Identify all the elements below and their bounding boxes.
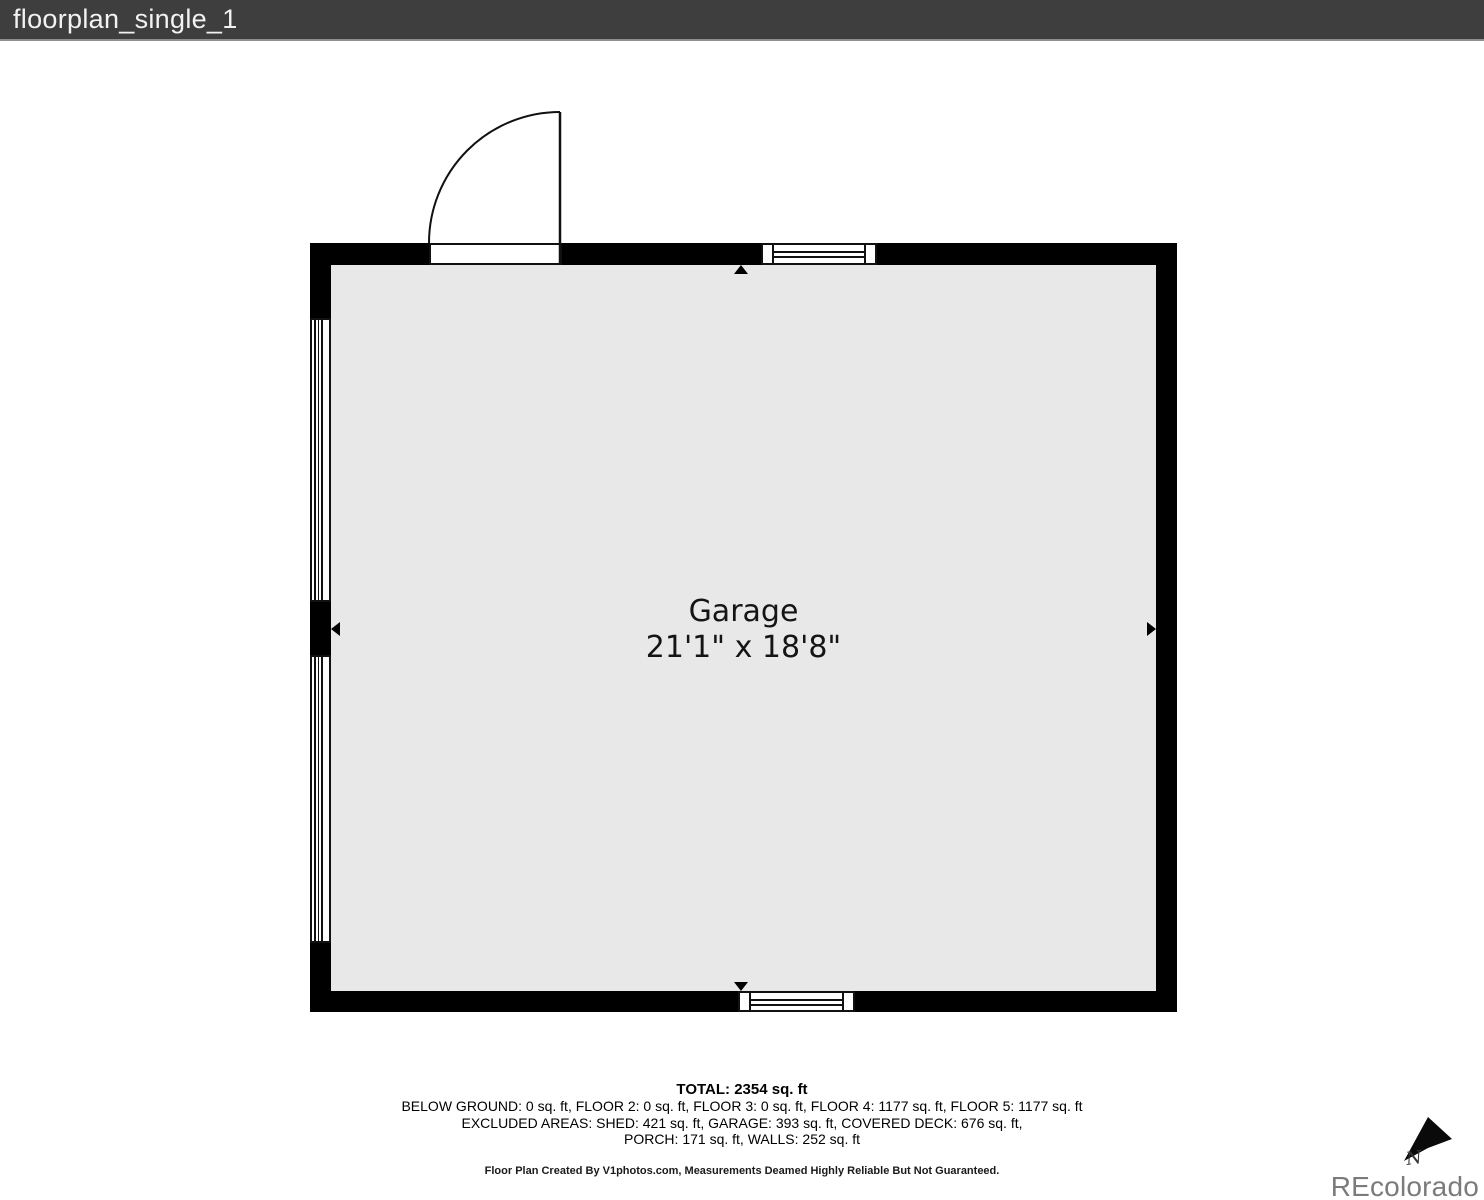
- window-pane-line: [321, 320, 323, 600]
- window-top-wall: [761, 243, 877, 265]
- room-name: Garage: [331, 594, 1156, 630]
- room-dimensions: 21'1" x 18'8": [331, 630, 1156, 666]
- window-pane-line: [773, 251, 865, 253]
- floorplan: Garage 21'1" x 18'8": [310, 243, 1177, 1012]
- window-cap: [842, 993, 844, 1010]
- window-pane-line: [318, 320, 320, 600]
- summary-excluded-2: PORCH: 171 sq. ft, WALLS: 252 sq. ft: [0, 1131, 1484, 1148]
- wall-marker-bottom-icon: [734, 982, 748, 991]
- title-bar: floorplan_single_1: [0, 0, 1484, 41]
- door-opening: [429, 243, 562, 265]
- summary-floors: BELOW GROUND: 0 sq. ft, FLOOR 2: 0 sq. f…: [0, 1098, 1484, 1115]
- area-summary: TOTAL: 2354 sq. ft BELOW GROUND: 0 sq. f…: [0, 1081, 1484, 1177]
- wall-marker-top-icon: [734, 265, 748, 274]
- page-title: floorplan_single_1: [0, 4, 238, 35]
- window-cap: [772, 245, 774, 263]
- window-cap: [749, 993, 751, 1010]
- summary-disclaimer: Floor Plan Created By V1photos.com, Meas…: [0, 1165, 1484, 1177]
- door-swing-arc: [429, 112, 560, 243]
- window-left-wall-upper: [310, 318, 331, 602]
- window-pane-line: [321, 657, 323, 941]
- window-left-wall-lower: [310, 655, 331, 943]
- window-pane-line: [314, 657, 316, 941]
- window-pane-line: [318, 657, 320, 941]
- window-pane-line: [750, 1004, 843, 1006]
- window-pane-line: [314, 320, 316, 600]
- window-pane-line: [773, 256, 865, 258]
- room-label: Garage 21'1" x 18'8": [331, 594, 1156, 666]
- window-bottom-wall: [738, 991, 855, 1012]
- north-label: N: [1405, 1147, 1424, 1170]
- recolorado-logo: REcolorado: [1331, 1171, 1479, 1200]
- summary-total: TOTAL: 2354 sq. ft: [0, 1081, 1484, 1098]
- window-cap: [864, 245, 866, 263]
- window-pane-line: [750, 999, 843, 1001]
- summary-excluded-1: EXCLUDED AREAS: SHED: 421 sq. ft, GARAGE…: [0, 1115, 1484, 1132]
